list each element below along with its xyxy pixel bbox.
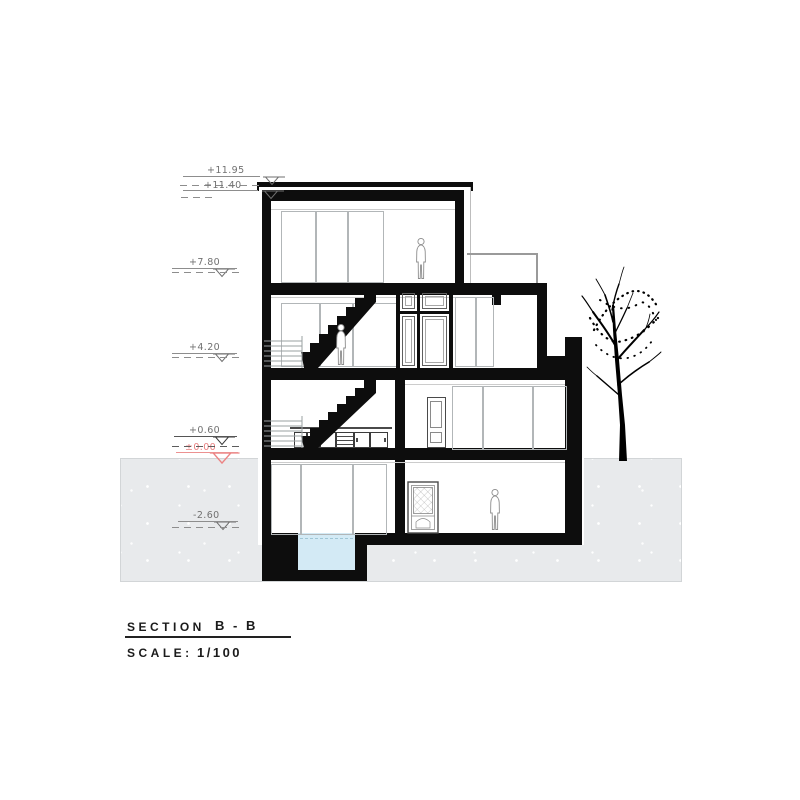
kitchen-drawer-line — [337, 436, 353, 437]
facade-face-line — [470, 187, 471, 283]
basement-mid-wall — [395, 460, 405, 533]
door-assembly-panel — [402, 293, 415, 309]
door-assembly-jamb-left — [396, 288, 400, 368]
level-label-third-floor: +7.80 — [189, 258, 220, 268]
door-assembly-head — [396, 288, 453, 292]
basement-slab — [367, 533, 582, 545]
second-floor-right-glazing-panel — [475, 297, 494, 367]
kitchen-cabinet-door — [294, 432, 307, 448]
level-marker-ground-floor — [213, 437, 235, 445]
coping-tick-right — [471, 182, 473, 191]
door-assembly-panel-inner — [405, 319, 412, 363]
third-floor-ceiling-line — [271, 209, 455, 210]
third-floor-glazing-panel — [315, 211, 349, 283]
level-dash-line — [172, 272, 244, 273]
level-label-second-floor: +4.20 — [189, 343, 220, 353]
door-assembly-transom-rail — [400, 311, 449, 314]
pool-water-line — [300, 538, 353, 539]
level-underline — [174, 436, 237, 437]
level-underline — [172, 353, 237, 354]
level-dash-line — [172, 357, 244, 358]
basement-glazing-panel — [300, 464, 354, 535]
pool-floor — [298, 570, 355, 581]
door-assembly-panel-inner — [425, 319, 444, 363]
cabinet-handle — [303, 438, 305, 442]
title-underline — [125, 636, 291, 638]
kitchen-drawer-line — [337, 440, 353, 441]
ground-floor-glazing-panel — [532, 386, 567, 450]
kitchen-cabinet-door — [307, 432, 320, 448]
scale-value: 1/100 — [197, 645, 242, 660]
door-assembly-jamb-right — [449, 288, 453, 368]
foundation-left — [262, 533, 298, 581]
basement-glazing-panel — [271, 464, 302, 535]
ground-floor-glazing-panel — [452, 386, 484, 450]
section-title-label: SECTION — [127, 620, 205, 634]
roof-coping — [257, 182, 473, 187]
third-floor-right-wall — [455, 190, 464, 283]
door-assembly-panel-inner — [425, 296, 444, 306]
second-floor-glazing-panel — [281, 303, 321, 367]
level-underline — [183, 190, 258, 191]
cabinet-handle — [384, 438, 386, 442]
second-floor-glazing-panel — [319, 303, 354, 367]
second-floor-glazing-panel — [352, 303, 398, 367]
level-dash-line — [172, 446, 244, 447]
third-floor-glazing-panel — [281, 211, 317, 283]
drawing-canvas: +11.95 +11.40 +7.80 +4.20 +0.60 ±0.00 -2… — [0, 0, 800, 800]
basement-ceiling-line — [271, 462, 565, 463]
terrace-railing — [467, 253, 538, 255]
pool-wall-right — [355, 533, 367, 581]
scale-label: SCALE: — [127, 646, 193, 660]
corridor-door-panel — [430, 401, 442, 428]
level-dash-line — [172, 527, 244, 528]
terrace-bench — [547, 356, 565, 368]
level-label-basement: -2.60 — [193, 511, 220, 521]
kitchen-countertop — [290, 427, 392, 429]
level-label-parapet-top: +11.95 — [207, 166, 245, 176]
door-assembly-panel — [422, 293, 447, 309]
third-floor-glazing-panel — [347, 211, 384, 283]
tree — [582, 267, 661, 461]
corridor-door-panel — [430, 432, 442, 443]
level-label-ground-floor: +0.60 — [189, 426, 220, 436]
level-underline — [183, 176, 260, 177]
cabinet-handle — [356, 438, 358, 442]
door-assembly-mullion — [417, 288, 420, 368]
cabinet-handle — [322, 438, 324, 442]
terrace-wall — [537, 283, 547, 368]
slab-420 — [262, 368, 582, 380]
kitchen-drawer-line — [337, 444, 353, 445]
section-title-value: B - B — [215, 618, 258, 633]
level-underline-red — [176, 452, 238, 453]
door-assembly-panel — [402, 316, 415, 366]
left-wall — [262, 190, 271, 533]
tree-trunk — [612, 305, 627, 461]
second-floor-right-glazing-panel — [455, 297, 477, 367]
door-assembly-panel — [422, 316, 447, 366]
level-dash-line — [181, 197, 215, 198]
basement-glazing-panel — [352, 464, 387, 535]
ground-floor-glazing-panel — [482, 386, 534, 450]
terrace-railing-post — [536, 253, 538, 283]
ground-floor-ceiling-line — [405, 384, 565, 385]
level-underline — [172, 268, 237, 269]
roof-slab — [264, 190, 464, 201]
ground-floor-mid-wall — [395, 380, 405, 448]
level-underline — [178, 521, 238, 522]
door-assembly-panel-inner — [405, 296, 412, 306]
